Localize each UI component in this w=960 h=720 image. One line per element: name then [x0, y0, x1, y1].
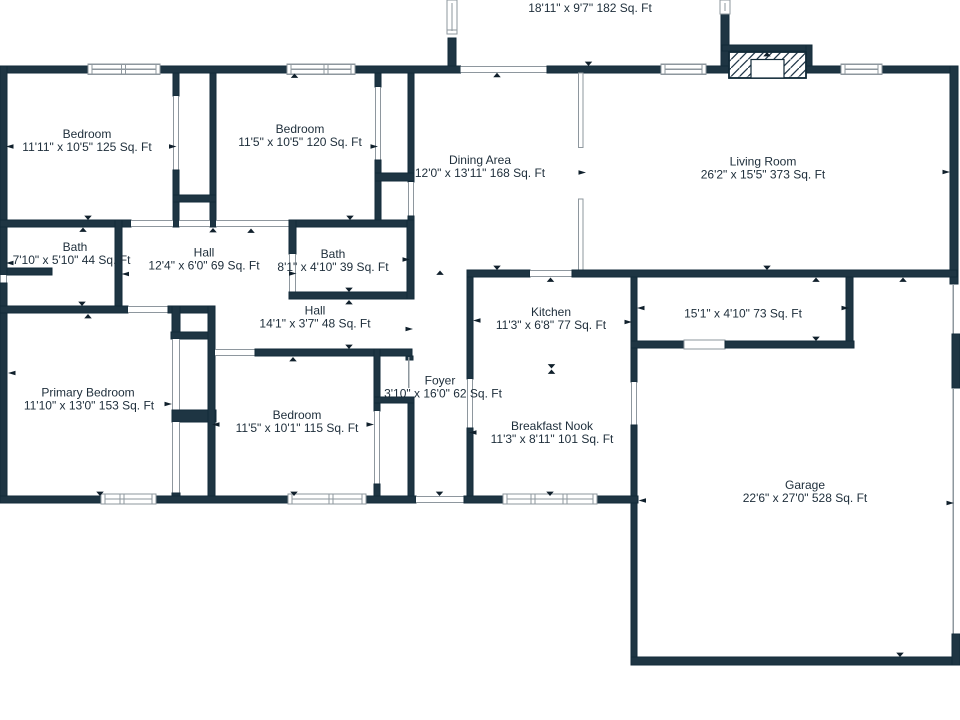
svg-text:Bath: Bath	[321, 247, 346, 261]
svg-text:Kitchen: Kitchen	[531, 305, 571, 319]
svg-text:3'10" x 16'0" 62 Sq. Ft: 3'10" x 16'0" 62 Sq. Ft	[384, 387, 503, 401]
svg-text:11'11" x 10'5" 125 Sq. Ft: 11'11" x 10'5" 125 Sq. Ft	[22, 140, 152, 154]
svg-text:11'3" x 6'8" 77 Sq. Ft: 11'3" x 6'8" 77 Sq. Ft	[496, 318, 607, 332]
svg-text:Hall: Hall	[194, 246, 215, 260]
svg-text:18'11" x 9'7" 182 Sq. Ft: 18'11" x 9'7" 182 Sq. Ft	[528, 1, 652, 15]
svg-text:15'1" x 4'10" 73 Sq. Ft: 15'1" x 4'10" 73 Sq. Ft	[684, 307, 803, 321]
svg-text:Bedroom: Bedroom	[63, 127, 112, 141]
svg-text:Primary Bedroom: Primary Bedroom	[41, 386, 134, 400]
svg-text:Living Room: Living Room	[730, 155, 797, 169]
svg-text:11'5" x 10'1" 115 Sq. Ft: 11'5" x 10'1" 115 Sq. Ft	[236, 421, 359, 435]
svg-text:Bedroom: Bedroom	[273, 408, 322, 422]
svg-text:11'10" x 13'0" 153 Sq. Ft: 11'10" x 13'0" 153 Sq. Ft	[24, 399, 155, 413]
svg-text:7'10" x 5'10" 44 Sq. Ft: 7'10" x 5'10" 44 Sq. Ft	[13, 253, 132, 267]
svg-text:22'6" x 27'0" 528 Sq. Ft: 22'6" x 27'0" 528 Sq. Ft	[743, 491, 868, 505]
svg-text:Dining Area: Dining Area	[449, 153, 511, 167]
svg-text:12'0" x 13'11" 168 Sq. Ft: 12'0" x 13'11" 168 Sq. Ft	[415, 166, 546, 180]
svg-text:14'1" x 3'7" 48 Sq. Ft: 14'1" x 3'7" 48 Sq. Ft	[259, 317, 371, 331]
svg-text:Breakfast Nook: Breakfast Nook	[511, 419, 594, 433]
svg-text:8'1" x 4'10" 39 Sq. Ft: 8'1" x 4'10" 39 Sq. Ft	[277, 260, 389, 274]
svg-text:Bedroom: Bedroom	[276, 122, 325, 136]
svg-text:Hall: Hall	[305, 304, 326, 318]
svg-text:12'4" x 6'0" 69 Sq. Ft: 12'4" x 6'0" 69 Sq. Ft	[148, 259, 260, 273]
svg-text:11'3" x 8'11" 101 Sq. Ft: 11'3" x 8'11" 101 Sq. Ft	[491, 432, 614, 446]
svg-text:11'5" x 10'5" 120 Sq. Ft: 11'5" x 10'5" 120 Sq. Ft	[238, 135, 362, 149]
svg-text:Foyer: Foyer	[425, 374, 456, 388]
svg-text:Garage: Garage	[785, 478, 825, 492]
svg-text:Bath: Bath	[63, 240, 88, 254]
svg-text:26'2" x 15'5" 373 Sq. Ft: 26'2" x 15'5" 373 Sq. Ft	[701, 168, 826, 182]
